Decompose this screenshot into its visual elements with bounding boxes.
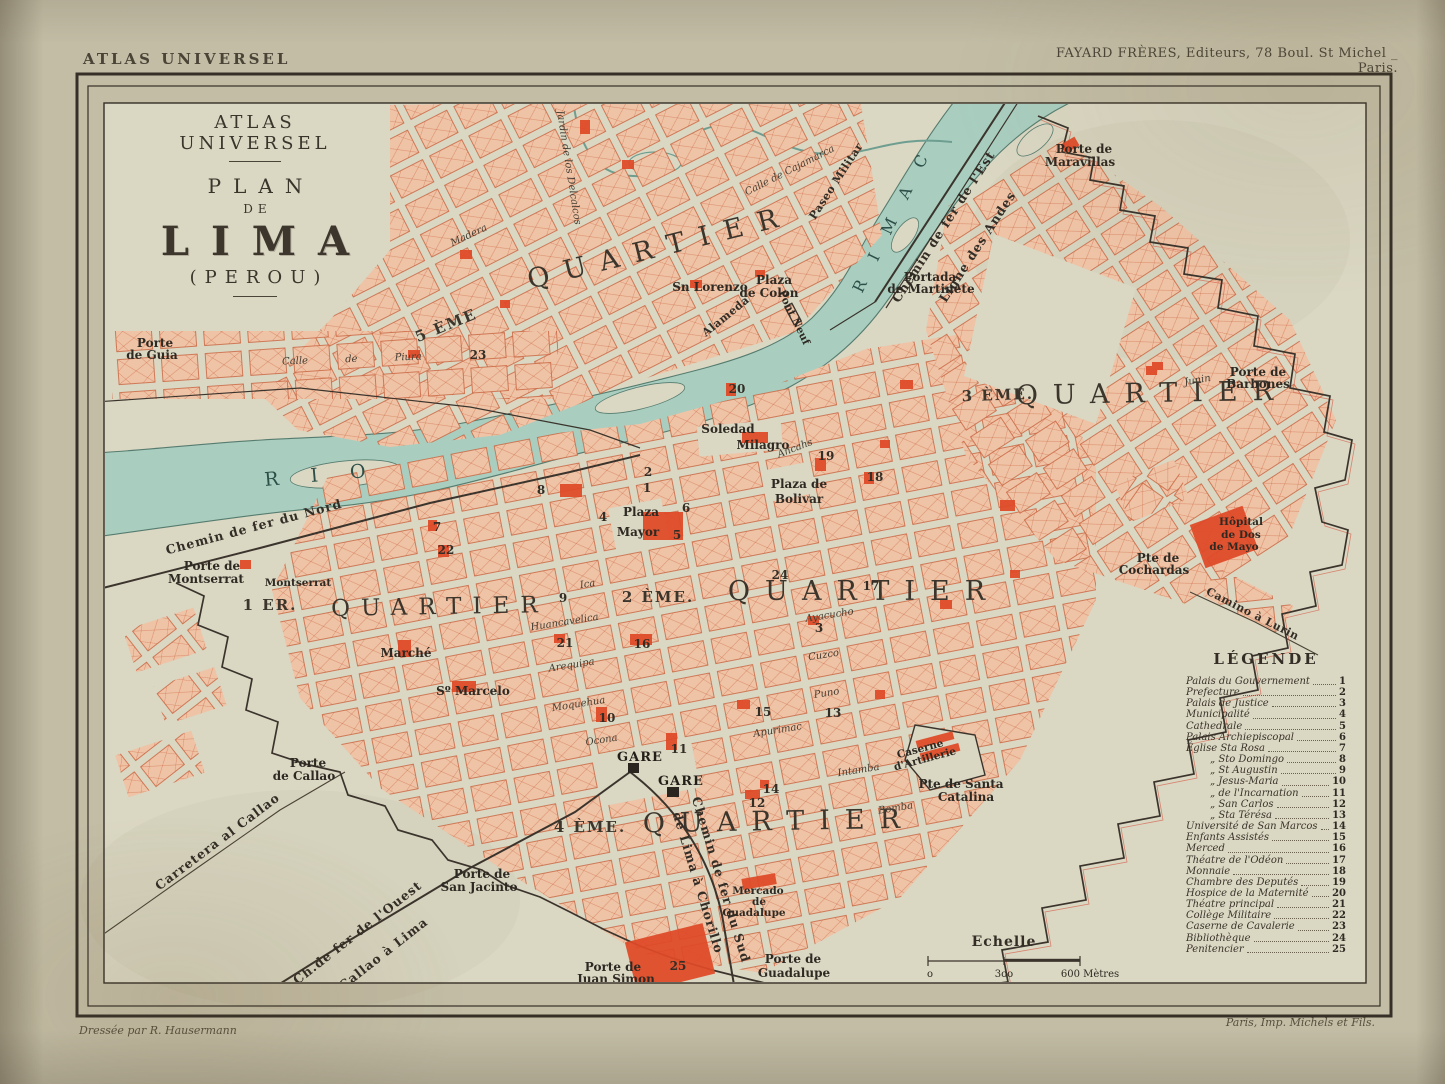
legend-entry-leader [1228, 852, 1329, 853]
legend-entry-leader [1274, 918, 1329, 919]
legend-entry: Caserne de Cavalerie 23 [1186, 921, 1346, 932]
map-sheet: ATLAS UNIVERSEL FAYARD FRÈRES, Editeurs,… [0, 0, 1445, 1084]
legend-entry-name: Théatre de l'Odéon [1186, 855, 1283, 866]
legend-entry-leader [1243, 695, 1336, 696]
legend-entry-name: „ de l'Incarnation [1186, 788, 1299, 799]
svg-text:22: 22 [438, 543, 455, 557]
gare-2-label: GARE [658, 774, 704, 789]
svg-text:15: 15 [755, 705, 772, 719]
legend: LÉGENDE Palais du Gouvernement 1 Prefect… [1186, 650, 1346, 955]
legend-entry-number: 4 [1339, 709, 1346, 720]
legend-entry: Prefecture 2 [1186, 687, 1346, 698]
svg-text:18: 18 [867, 470, 884, 484]
legend-entry-name: Enfants Assistés [1186, 832, 1269, 843]
legend-entry-number: 23 [1332, 921, 1346, 932]
legend-entry: Merced 16 [1186, 843, 1346, 854]
legend-entry-leader [1245, 729, 1336, 730]
legend-entry: „ San Carlos 12 [1186, 799, 1346, 810]
quartier-2-number: 2 ÈME. [622, 588, 694, 606]
legend-entry-leader [1282, 785, 1330, 786]
svg-text:23: 23 [470, 348, 487, 362]
svg-text:21: 21 [557, 636, 574, 650]
legend-entry: „ Sta Térésa 13 [1186, 810, 1346, 821]
legend-entry-leader [1272, 840, 1329, 841]
legend-entry-leader [1321, 829, 1330, 830]
san-lorenzo-label: Sn Lorenzo [672, 280, 748, 294]
legend-entry-leader [1302, 796, 1329, 797]
svg-text:16: 16 [634, 637, 651, 651]
legend-entry: Municipalité 4 [1186, 709, 1346, 720]
svg-text:2: 2 [644, 465, 652, 479]
legend-entry-name: Municipalité [1186, 709, 1250, 720]
svg-text:7: 7 [433, 520, 441, 534]
legend-entry-number: 18 [1332, 866, 1346, 877]
quartier-1-name: QUARTIER [331, 592, 549, 622]
legend-entry-leader [1286, 863, 1329, 864]
title-city: LIMA [146, 218, 386, 265]
legend-entry: Université de San Marcos 14 [1186, 821, 1346, 832]
svg-text:9: 9 [559, 591, 567, 605]
legend-entry-name: Palais de Justice [1186, 698, 1269, 709]
legend-entry: Penitencier 25 [1186, 944, 1346, 955]
scale-600: 600 Mètres [1061, 969, 1119, 980]
legend-entry-name: Collège Militaire [1186, 910, 1271, 921]
legend-entry-number: 3 [1339, 698, 1346, 709]
legend-entry: Théatre principal 21 [1186, 899, 1346, 910]
scale-300: 3oo [995, 969, 1013, 980]
legend-entry-number: 19 [1332, 877, 1346, 888]
title-rule-bottom [233, 296, 277, 297]
legend-entry-number: 12 [1332, 799, 1346, 810]
legend-entry: Cathedrale 5 [1186, 721, 1346, 732]
svg-text:17: 17 [863, 579, 880, 593]
legend-entry-leader [1313, 684, 1336, 685]
svg-text:6: 6 [682, 501, 690, 515]
svg-text:3: 3 [815, 621, 823, 635]
title-plan: PLAN [146, 174, 376, 198]
legend-entry: Bibliothèque 24 [1186, 933, 1346, 944]
svg-text:8: 8 [537, 483, 545, 497]
legend-entry-leader [1297, 740, 1336, 741]
svg-text:4: 4 [599, 510, 607, 524]
legend-entry-name: Église Sta Rosa [1186, 743, 1265, 754]
svg-text:5: 5 [673, 528, 681, 542]
legend-entry-number: 8 [1339, 754, 1346, 765]
legend-entry-number: 21 [1332, 899, 1346, 910]
legend-entry-name: „ St Augustin [1186, 765, 1278, 776]
scale-zero: o [927, 969, 933, 980]
legend-entry: Collège Militaire 22 [1186, 910, 1346, 921]
legend-entry: „ St Augustin 9 [1186, 765, 1346, 776]
legend-entry-number: 20 [1332, 888, 1346, 899]
legend-entry-number: 17 [1332, 855, 1346, 866]
legend-entries: Palais du Gouvernement 1 Prefecture 2 Pa… [1186, 676, 1346, 955]
svg-text:13: 13 [825, 706, 842, 720]
title-country: (PEROU) [146, 267, 372, 288]
legend-entry-name: Bibliothèque [1186, 933, 1251, 944]
legend-entry-name: Palais Archiepiscopal [1186, 732, 1294, 743]
legend-entry-number: 15 [1332, 832, 1346, 843]
legend-entry-leader [1233, 874, 1329, 875]
legend-entry-number: 2 [1339, 687, 1346, 698]
legend-entry: „ de l'Incarnation 11 [1186, 788, 1346, 799]
legend-entry-number: 11 [1332, 788, 1346, 799]
svg-text:1: 1 [643, 481, 651, 495]
legend-entry-leader [1277, 807, 1330, 808]
svg-text:25: 25 [670, 959, 687, 973]
legend-entry-name: Penitencier [1186, 944, 1244, 955]
gate-barbones-label: Porte deBarbones [1226, 365, 1290, 391]
legend-entry-leader [1281, 773, 1336, 774]
svg-text:11: 11 [671, 742, 688, 756]
title-series: ATLAS UNIVERSEL [146, 112, 364, 154]
svg-text:24: 24 [772, 568, 789, 582]
legend-entry-number: 6 [1339, 732, 1346, 743]
legend-entry-leader [1253, 718, 1336, 719]
legend-entry-name: Cathedrale [1186, 721, 1242, 732]
legend-entry-leader [1277, 907, 1329, 908]
legend-entry-name: Université de San Marcos [1186, 821, 1318, 832]
gate-guadalupe-label: Porte deGuadalupe [758, 952, 831, 980]
legend-entry-number: 10 [1332, 776, 1346, 787]
legend-entry-leader [1275, 818, 1329, 819]
legend-entry-name: „ Sta Térésa [1186, 810, 1272, 821]
montserrat-place-label: Montserrat [265, 577, 332, 589]
legend-entry: Église Sta Rosa 7 [1186, 743, 1346, 754]
quartier-1-number: 1 ER. [243, 596, 298, 614]
legend-entry: Enfants Assistés 15 [1186, 832, 1346, 843]
legend-entry-name: Merced [1186, 843, 1225, 854]
legend-entry-name: „ Sto Domingo [1186, 754, 1284, 765]
legend-entry: „ Jesus-Maria 10 [1186, 776, 1346, 787]
san-marcelo-label: Sº Marcelo [436, 684, 510, 698]
soledad-label: Soledad [701, 422, 755, 436]
legend-entry: Palais de Justice 3 [1186, 698, 1346, 709]
legend-entry: „ Sto Domingo 8 [1186, 754, 1346, 765]
legend-title: LÉGENDE [1186, 650, 1346, 668]
legend-entry-leader [1298, 930, 1329, 931]
svg-text:12: 12 [749, 796, 766, 810]
legend-entry-name: Prefecture [1186, 687, 1240, 698]
legend-entry-leader [1301, 885, 1329, 886]
legend-entry-number: 9 [1339, 765, 1346, 776]
legend-entry-number: 5 [1339, 721, 1346, 732]
legend-entry-number: 24 [1332, 933, 1346, 944]
svg-text:14: 14 [763, 782, 780, 796]
legend-entry-number: 25 [1332, 944, 1346, 955]
legend-entry-name: Palais du Gouvernement [1186, 676, 1310, 687]
legend-entry-leader [1272, 706, 1336, 707]
legend-entry-name: „ Jesus-Maria [1186, 776, 1279, 787]
legend-entry: Monnaie 18 [1186, 866, 1346, 877]
legend-entry-leader [1254, 941, 1330, 942]
svg-text:20: 20 [729, 382, 746, 396]
svg-text:19: 19 [818, 449, 835, 463]
gate-maravillas-label: Porte deMaravillas [1045, 142, 1116, 169]
legend-entry-name: Théatre principal [1186, 899, 1274, 910]
legend-entry-name: Hospice de la Maternité [1186, 888, 1309, 899]
gare-1-label: GARE [617, 750, 663, 765]
legend-entry: Chambre des Deputés 19 [1186, 877, 1346, 888]
svg-text:10: 10 [599, 711, 616, 725]
legend-entry: Palais Archiepiscopal 6 [1186, 732, 1346, 743]
legend-entry-name: Chambre des Deputés [1186, 877, 1298, 888]
legend-entry-leader [1312, 896, 1330, 897]
marche-label: Marché [380, 646, 431, 660]
legend-entry: Théatre de l'Odéon 17 [1186, 855, 1346, 866]
legend-entry-leader [1287, 762, 1336, 763]
legend-entry-name: Caserne de Cavalerie [1186, 921, 1295, 932]
legend-entry-number: 14 [1332, 821, 1346, 832]
title-rule-top [229, 161, 281, 162]
legend-entry: Palais du Gouvernement 1 [1186, 676, 1346, 687]
legend-entry-number: 16 [1332, 843, 1346, 854]
quartier-4-number: 4 ÈME. [554, 818, 626, 836]
legend-entry-name: „ San Carlos [1186, 799, 1274, 810]
legend-entry-number: 13 [1332, 810, 1346, 821]
legend-entry-leader [1247, 952, 1329, 953]
legend-entry: Hospice de la Maternité 20 [1186, 888, 1346, 899]
legend-entry-number: 7 [1339, 743, 1346, 754]
legend-entry-number: 22 [1332, 910, 1346, 921]
title-de: DE [146, 202, 369, 216]
legend-entry-leader [1268, 751, 1336, 752]
map-title-block: ATLAS UNIVERSEL PLAN DE LIMA (PEROU) [146, 112, 364, 297]
legend-entry-number: 1 [1339, 676, 1346, 687]
legend-entry-name: Monnaie [1186, 866, 1230, 877]
scale-title: Echelle [972, 934, 1037, 950]
plaza-bolivar-label: Plaza deBolivar [771, 477, 828, 506]
